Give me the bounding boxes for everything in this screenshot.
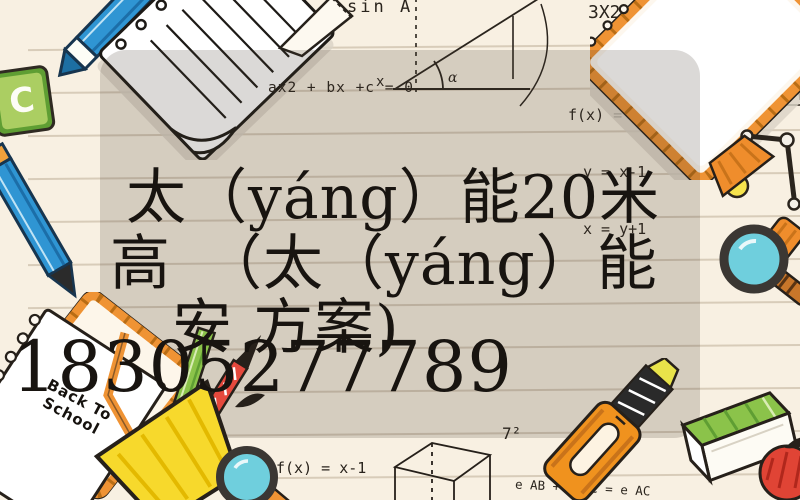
formula-fx-bottom: f(x) = x-1 y = x-1 x = y+1	[276, 421, 366, 500]
magnifier-icon	[710, 215, 800, 307]
formula-line: f(x) = x-1	[276, 459, 366, 478]
formula-seven-squared: 7²	[502, 424, 521, 443]
letter-block-label: C	[7, 79, 37, 122]
letter-block-icon: C	[0, 64, 56, 138]
header-image: C	[0, 0, 800, 500]
phone-number: 18305277789	[12, 326, 513, 408]
title-line-1: 太（yáng）能20米	[126, 166, 660, 230]
leaf-icon	[785, 437, 800, 448]
formula-sin: sin A	[347, 0, 413, 17]
cube-diagram-icon	[370, 435, 500, 500]
pencil-icon	[0, 133, 108, 318]
title-line-2: 高 （太（yáng）能	[110, 232, 658, 296]
apple-icon	[745, 428, 800, 500]
